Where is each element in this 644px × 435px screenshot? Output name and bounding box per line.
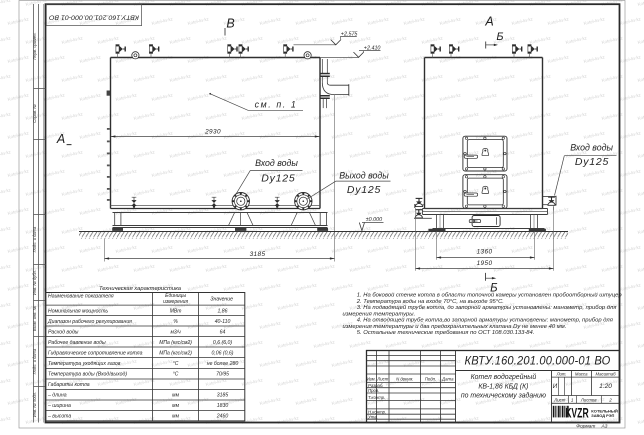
svg-text:1: 1 (571, 397, 574, 402)
svg-text:N докум.: N докум. (396, 377, 413, 382)
svg-text:Лист: Лист (553, 397, 565, 402)
svg-text:Вход воды: Вход воды (570, 142, 613, 152)
svg-text:3185: 3185 (217, 393, 229, 399)
svg-text:И: И (553, 383, 558, 390)
svg-text:40-110: 40-110 (215, 319, 231, 325)
svg-text:1360: 1360 (477, 249, 493, 256)
svg-text:мм: мм (172, 393, 179, 399)
svg-text:Температура воды (Вход/выход): Температура воды (Вход/выход) (48, 372, 127, 378)
svg-text:А3: А3 (601, 424, 608, 430)
svg-text:Изм.: Изм. (367, 377, 376, 382)
svg-text:по техническому заданию: по техническому заданию (461, 392, 546, 400)
svg-text:В: В (226, 17, 234, 31)
svg-text:Рабочее давление воды: Рабочее давление воды (48, 340, 106, 346)
svg-text:м3/ч: м3/ч (171, 330, 182, 336)
svg-text:Значение: Значение (210, 296, 233, 302)
svg-text:2930: 2930 (204, 129, 221, 136)
svg-text:мм: мм (172, 403, 179, 409)
svg-text:KVZR: KVZR (565, 405, 589, 420)
svg-text:Масштаб: Масштаб (595, 371, 616, 376)
svg-text:Номинальная мощность: Номинальная мощность (48, 308, 108, 314)
svg-text:°С: °С (173, 361, 179, 367)
svg-text:Температура уходящих газов: Температура уходящих газов (48, 361, 121, 367)
svg-text:Т.контр.: Т.контр. (368, 395, 385, 400)
svg-text:3. На подводящей трубе котла,: 3. На подводящей трубе котла, до запорно… (357, 304, 617, 311)
svg-text:2460: 2460 (216, 414, 229, 420)
svg-text:Габариты котла: Габариты котла (48, 382, 90, 388)
svg-text:МВт: МВт (170, 308, 182, 314)
svg-text:Вход воды: Вход воды (255, 158, 298, 168)
svg-text:Пров.: Пров. (368, 388, 379, 393)
svg-text:А: А (56, 132, 65, 146)
svg-text:Расход воды: Расход воды (48, 330, 79, 336)
svg-text:Листов: Листов (580, 397, 597, 402)
svg-text:°С: °С (173, 372, 179, 378)
svg-text:Котел водогрейный: Котел водогрейный (471, 373, 537, 381)
svg-text:Наименование показателя: Наименование показателя (48, 294, 114, 300)
svg-text:измерения температуры.: измерения температуры. (343, 311, 416, 317)
svg-text:Разраб.: Разраб. (368, 383, 384, 388)
svg-text:Dy125: Dy125 (575, 156, 609, 168)
svg-text:Диапазон рабочего регулировани: Диапазон рабочего регулирования (47, 319, 132, 325)
svg-text:1,86: 1,86 (217, 308, 227, 314)
svg-text:±0.000: ±0.000 (366, 217, 382, 223)
svg-text:1. На боковой стенке котла в: 1. На боковой стенке котла в области топ… (357, 292, 623, 299)
svg-text:64: 64 (220, 330, 226, 336)
svg-text:Подп.: Подп. (425, 377, 436, 382)
svg-text:Справ. №: Справ. № (32, 104, 37, 123)
svg-text:1950: 1950 (477, 260, 493, 267)
svg-text:Подп. и дата: Подп. и дата (32, 348, 37, 374)
svg-text:%: % (173, 319, 178, 325)
svg-text:4. На отводящей трубе котла,в: 4. На отводящей трубе котла,во запорной … (357, 317, 613, 324)
svg-text:3185: 3185 (250, 251, 266, 258)
svg-text:0,06 (0,6): 0,06 (0,6) (211, 351, 233, 357)
svg-text:Dy125: Dy125 (261, 173, 295, 185)
svg-text:Б: Б (496, 31, 503, 43)
svg-text:МПа (кгс/см2): МПа (кгс/см2) (159, 340, 192, 346)
svg-text:измерения: измерения (163, 299, 188, 305)
svg-text:Dy125: Dy125 (347, 184, 381, 196)
svg-text:Лист: Лист (376, 377, 388, 382)
svg-text:измерения температуры и два пр: измерения температуры и два предохраните… (343, 324, 567, 330)
svg-text:КВ-1,86 КБД (К): КВ-1,86 КБД (К) (478, 383, 528, 390)
svg-text:70/95: 70/95 (216, 372, 229, 378)
svg-text:Перв. примен.: Перв. примен. (32, 32, 37, 59)
svg-text:2: 2 (608, 397, 612, 402)
svg-text:Инв. № дубл.: Инв. № дубл. (32, 270, 37, 295)
svg-text:+2.410: +2.410 (364, 45, 381, 51)
svg-text:Взам. инв. №: Взам. инв. № (32, 305, 37, 331)
svg-text:мм: мм (172, 414, 179, 420)
svg-text:не более 280: не более 280 (207, 361, 239, 367)
svg-text:КВТУ.160.201.00.000-01 ВО: КВТУ.160.201.00.000-01 ВО (465, 354, 611, 367)
svg-text:Формат: Формат (576, 424, 595, 430)
svg-text:– ширина: – ширина (47, 403, 71, 409)
svg-text:5. Остальные технические треб: 5. Остальные технические требования по О… (357, 330, 535, 336)
svg-text:2. Температура воды на входе: 2. Температура воды на входе 70°С, на вы… (356, 299, 504, 305)
svg-text:ЗАВОД РЭП: ЗАВОД РЭП (591, 413, 614, 418)
svg-text:– длина: – длина (47, 393, 67, 399)
svg-text:+2.575: +2.575 (341, 31, 359, 37)
svg-text:1830: 1830 (217, 403, 229, 409)
svg-text:Дата: Дата (441, 377, 454, 382)
svg-text:Лит.: Лит. (556, 371, 567, 376)
svg-text:Подп. и дата: Подп. и дата (32, 226, 37, 252)
svg-text:Утв.: Утв. (368, 414, 378, 419)
svg-text:КВТУ.160.201.00.000-01 ВО: КВТУ.160.201.00.000-01 ВО (48, 14, 139, 21)
svg-text:1:20: 1:20 (599, 383, 612, 390)
svg-text:Инв. № подл.: Инв. № подл. (32, 392, 37, 417)
svg-text:– высота: – высота (47, 414, 71, 420)
svg-text:Выход воды: Выход воды (339, 170, 389, 180)
svg-text:Техническая характеристика: Техническая характеристика (99, 286, 182, 292)
svg-text:Гидравлическое сопротивление к: Гидравлическое сопротивление котла (48, 351, 143, 357)
svg-text:0,6 (6,0): 0,6 (6,0) (213, 340, 232, 346)
svg-text:МПа (кгс/см2): МПа (кгс/см2) (159, 351, 192, 357)
svg-text:А: А (484, 15, 493, 29)
svg-text:см. п. 1: см. п. 1 (255, 100, 298, 110)
svg-text:Масса: Масса (575, 371, 588, 376)
